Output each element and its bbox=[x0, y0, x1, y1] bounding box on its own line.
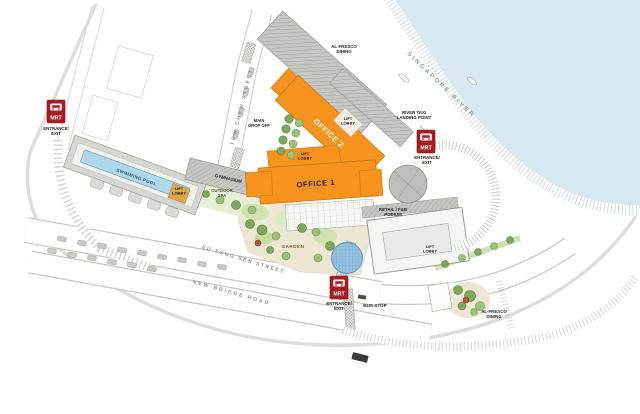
mrt-label: MRT bbox=[420, 146, 432, 152]
bus-stop-label: BUS STOP bbox=[363, 303, 386, 308]
site-plan-map: MRT MRT MRT SINGAPORE RIVER TEW CHEW STR… bbox=[0, 0, 640, 414]
mrt-station-south: MRT bbox=[330, 276, 348, 299]
retail-fnb-podium-building bbox=[362, 197, 470, 274]
mrt-station-west: MRT bbox=[47, 100, 65, 123]
mrt-label: MRT bbox=[50, 116, 62, 122]
mrt-entrance-exit-label-west: ENTRANCE/EXIT bbox=[43, 126, 69, 136]
main-drop-off-label: MAINDROP OFF bbox=[248, 118, 270, 128]
mrt-station-east: MRT bbox=[417, 130, 435, 153]
neighbouring-blocks bbox=[56, 6, 153, 150]
water-feature-plaza bbox=[332, 243, 363, 274]
mrt-entrance-exit-label-east: ENTRANCE/EXIT bbox=[414, 155, 440, 165]
site-plan-canvas: MRT MRT MRT SINGAPORE RIVER TEW CHEW STR… bbox=[0, 0, 640, 414]
alfresco-building bbox=[428, 282, 452, 311]
al-fresco-dining-label-north: AL-FRESCODINING bbox=[331, 44, 357, 54]
mrt-label: MRT bbox=[333, 292, 345, 298]
garden-label: GARDEN bbox=[282, 244, 305, 249]
round-pavilion bbox=[389, 165, 427, 203]
river-taxi-label: RIVER TAXILANDING POINT bbox=[397, 110, 432, 120]
